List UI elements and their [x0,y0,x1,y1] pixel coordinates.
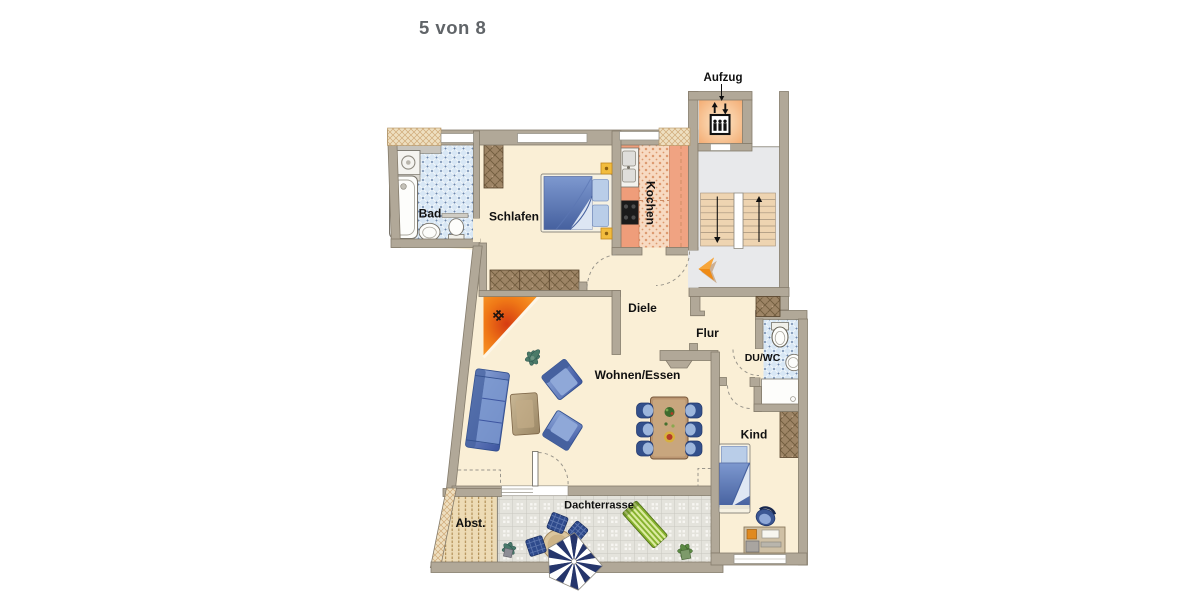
svg-text:Dachterrasse: Dachterrasse [564,500,634,512]
svg-text:Abst.: Abst. [456,516,486,530]
svg-text:Aufzug: Aufzug [704,72,743,84]
svg-text:Diele: Diele [628,301,657,315]
svg-text:Kind: Kind [741,428,768,442]
svg-text:Flur: Flur [696,326,719,340]
svg-text:DU/WC: DU/WC [745,352,781,364]
svg-text:Wohnen/Essen: Wohnen/Essen [595,368,681,382]
svg-text:Bad: Bad [419,207,442,221]
svg-text:Kochen: Kochen [644,181,658,225]
svg-text:5 von 8: 5 von 8 [419,17,486,38]
svg-text:Schlafen: Schlafen [489,210,539,224]
